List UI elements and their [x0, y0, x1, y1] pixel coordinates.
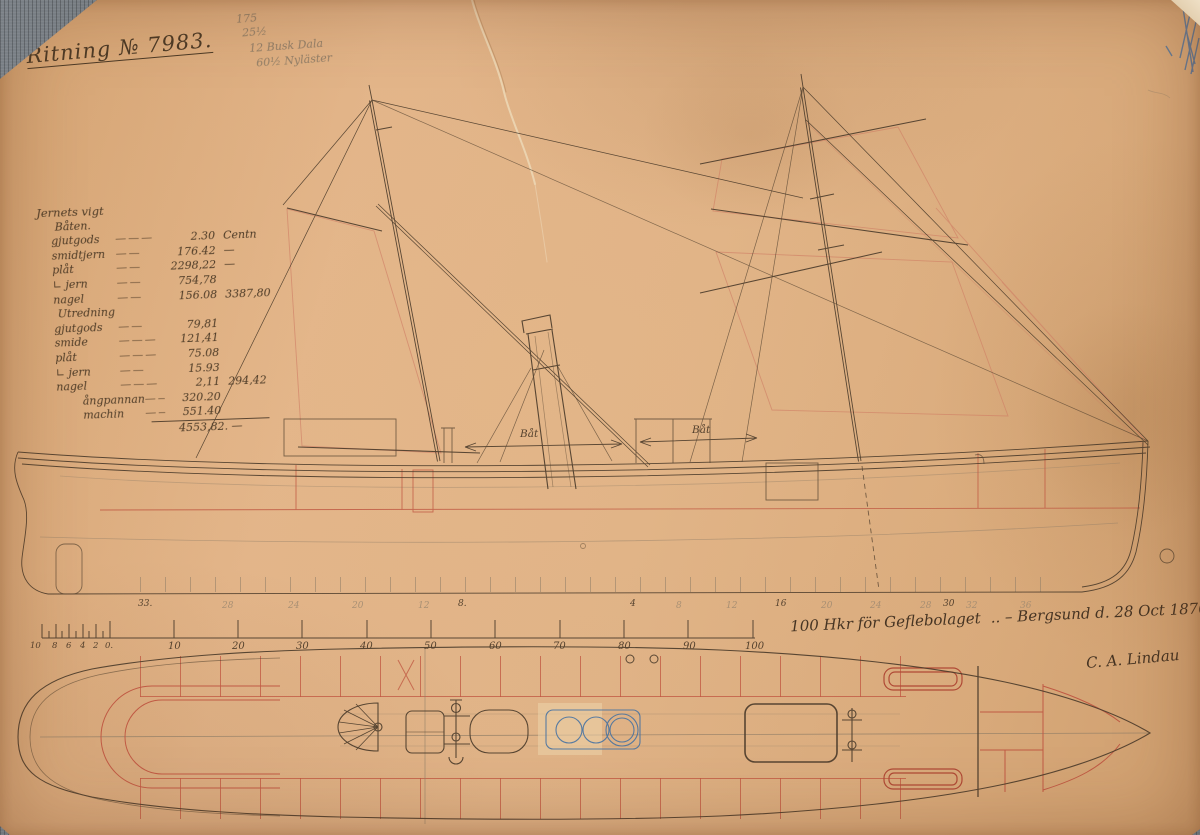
scanned-ship-drawing: Ritning № 7983. 17525½12 Busk Dala60½ Ny… — [0, 0, 1200, 835]
scale-label: 20 — [232, 641, 245, 652]
scale-label: 60 — [489, 641, 502, 652]
engine-crosshead — [444, 700, 470, 764]
station-number: 28 — [222, 601, 233, 611]
station-number: 12 — [418, 601, 429, 611]
scale-major-labels: 102030405060708090100 — [0, 641, 800, 655]
scale-bar — [42, 620, 755, 638]
weight-table-rows-outfit: gjutgods——79,81 smide———121,41 plåt———75… — [40, 315, 281, 425]
fore-mast — [801, 74, 880, 590]
station-number: 8 — [676, 601, 682, 611]
boat-arrows — [465, 434, 757, 451]
main-mast — [369, 85, 440, 462]
rigging — [196, 87, 1148, 467]
scale-label: 10 — [168, 641, 181, 652]
station-number: 30 — [943, 599, 954, 609]
yards — [287, 119, 968, 453]
pencil-note-line: 60½ Nyläster — [256, 51, 333, 69]
boat-label: Båt — [520, 428, 538, 440]
boiler-outline — [470, 710, 528, 753]
weight-table: Jernets vigt Båten. gjutgods———2.30Centn… — [36, 198, 282, 441]
pencil-note-line: 25½ — [242, 25, 268, 40]
keel — [48, 592, 1082, 594]
bow-hatches — [884, 668, 962, 789]
scale-label: 30 — [296, 641, 309, 652]
scale-label: 80 — [618, 641, 631, 652]
station-number: 24 — [288, 601, 299, 611]
scale-label: 90 — [683, 641, 696, 652]
scale-label: 40 — [360, 641, 373, 652]
aft-machinery-box — [745, 704, 837, 762]
scale-label: 50 — [424, 641, 437, 652]
punch-hole — [1160, 549, 1174, 563]
station-number: 4 — [630, 599, 636, 609]
scale-label: 70 — [553, 641, 566, 652]
station-number: 28 — [920, 601, 931, 611]
scale-label: 100 — [745, 641, 764, 652]
station-number: 33. — [138, 599, 152, 609]
engine-fan — [338, 703, 382, 751]
weight-table-rows-hull: gjutgods———2.30Centn smidtjern——176.42— … — [37, 227, 277, 308]
paper-sheet: Ritning № 7983. 17525½12 Busk Dala60½ Ny… — [0, 0, 1200, 835]
rudder — [56, 544, 82, 594]
funnel — [477, 315, 612, 489]
stern-counter — [15, 452, 48, 594]
station-number: 16 — [775, 599, 786, 609]
pencil-note-line: 175 — [236, 11, 258, 25]
station-number: 24 — [870, 601, 881, 611]
aft-fitting — [842, 708, 862, 762]
boat-label: Båt — [692, 424, 710, 436]
pencil-notes: 17525½12 Busk Dala60½ Nyläster — [234, 3, 379, 83]
station-number: 12 — [726, 601, 737, 611]
station-number: 8. — [458, 599, 467, 609]
station-number: 20 — [352, 601, 363, 611]
station-number: 20 — [821, 601, 832, 611]
